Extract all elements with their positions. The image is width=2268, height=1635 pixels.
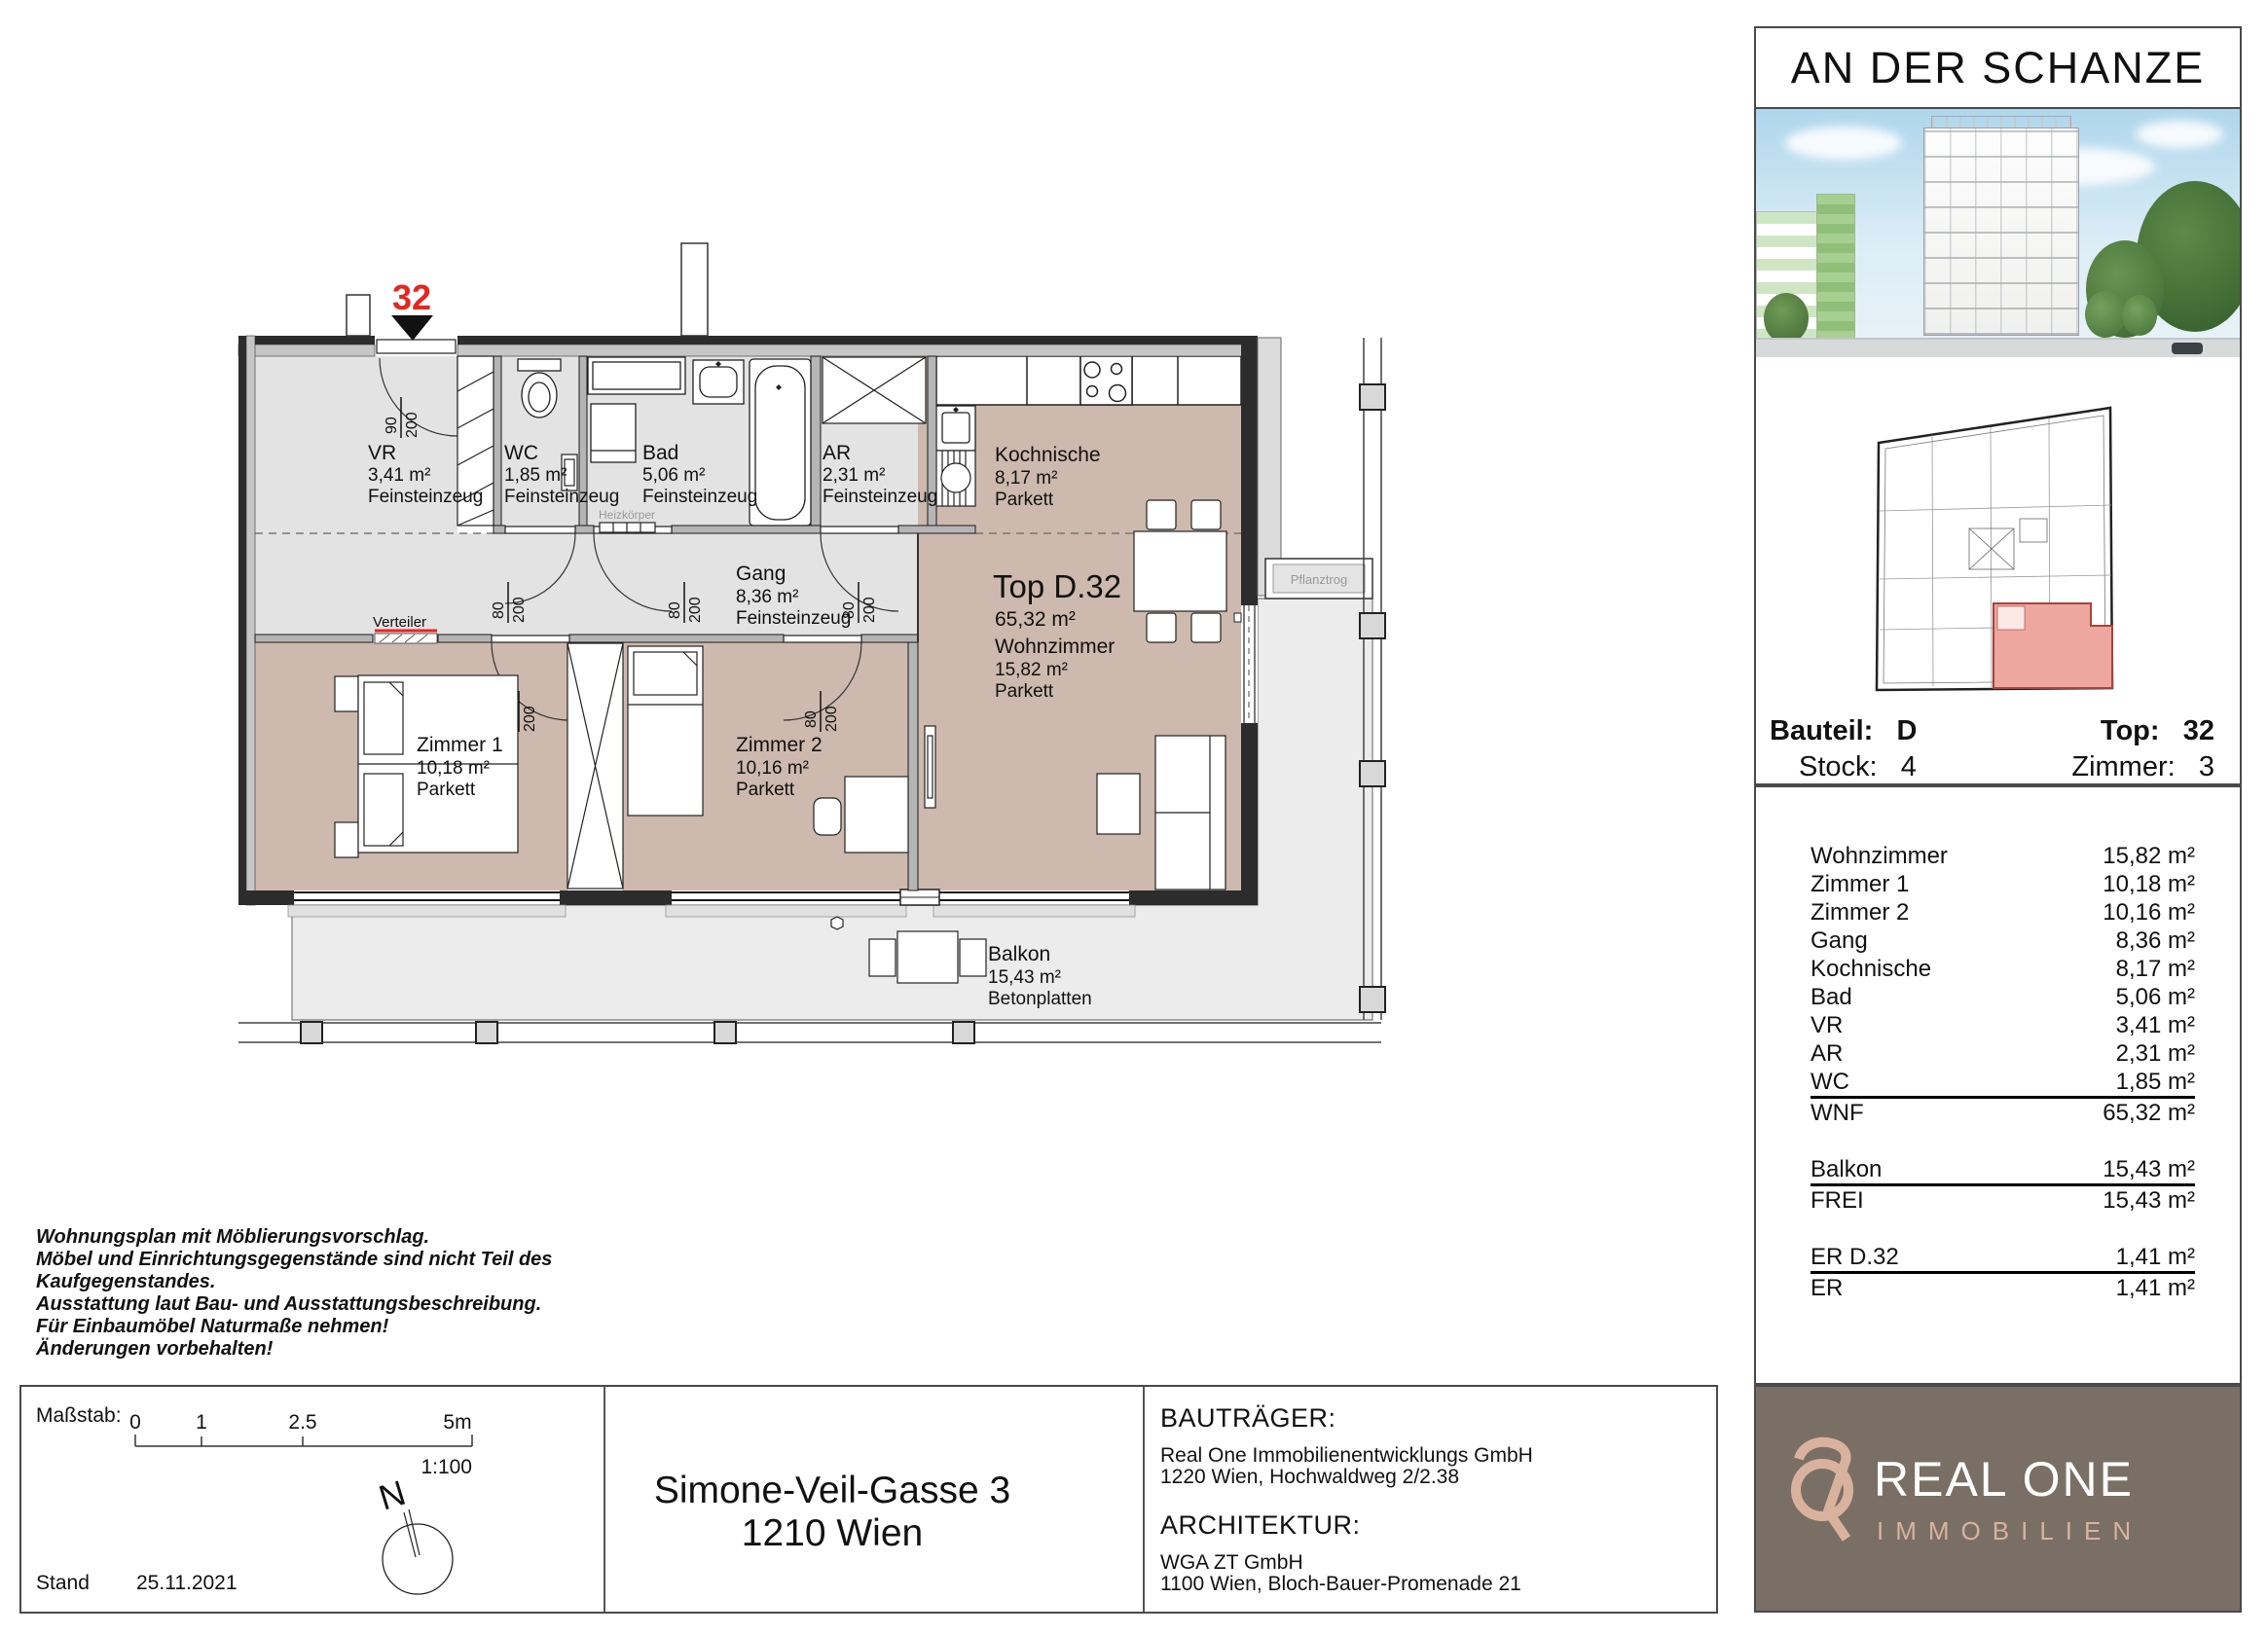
row-value: 10,18 m² — [2103, 870, 2195, 898]
svg-text:200: 200 — [861, 597, 878, 623]
cloud-shape — [1785, 127, 1902, 160]
svg-text:200: 200 — [522, 706, 538, 732]
dishwasher-icon — [936, 451, 975, 506]
bath-cabinet — [588, 357, 685, 394]
stock-value: 4 — [1901, 751, 1917, 782]
table-row: Bad5,06 m² — [1811, 983, 2195, 1011]
row-value: 1,41 m² — [2116, 1274, 2195, 1302]
svg-text:Feinsteinzeug: Feinsteinzeug — [642, 487, 757, 507]
row-label: Balkon — [1811, 1155, 1882, 1183]
row-value: 15,82 m² — [2103, 842, 2195, 870]
row-label: Zimmer 2 — [1811, 898, 1909, 926]
row-label: VR — [1811, 1011, 1843, 1039]
heizkoerper-label: Heizkörper — [599, 508, 655, 522]
disclaimer-line: Wohnungsplan mit Möblierungsvorschlag. — [36, 1226, 552, 1249]
svg-text:200: 200 — [404, 412, 421, 438]
scale-bar — [131, 1413, 482, 1456]
svg-text:10,16 m²: 10,16 m² — [736, 758, 809, 779]
row-label: AR — [1811, 1039, 1843, 1068]
row-label: Wohnzimmer — [1811, 842, 1948, 870]
svg-text:15,82 m²: 15,82 m² — [995, 660, 1068, 680]
table-row: AR2,31 m² — [1811, 1039, 2195, 1068]
table-row-total-frei: FREI15,43 m² — [1811, 1186, 2195, 1215]
unit-info-row2: Stock: 4 — [1799, 751, 1917, 783]
table-row: VR3,41 m² — [1811, 1011, 2195, 1039]
bed-zimmer2 — [628, 646, 703, 816]
row-value: 65,32 m² — [2103, 1099, 2195, 1127]
developer-heading: BAUTRÄGER: — [1160, 1403, 1336, 1434]
zimmer-label: Zimmer: — [2071, 751, 2175, 782]
table-row: Zimmer 110,18 m² — [1811, 870, 2195, 898]
table-row-total-er: ER1,41 m² — [1811, 1274, 2195, 1302]
svg-text:200: 200 — [511, 597, 528, 623]
row-value: 8,17 m² — [2116, 955, 2195, 983]
svg-text:Parkett: Parkett — [995, 490, 1054, 510]
row-value: 15,43 m² — [2103, 1155, 2195, 1183]
bauteil-value: D — [1897, 715, 1918, 746]
tree — [1764, 293, 1809, 344]
entrance-marker: 32 — [391, 277, 433, 341]
washing-machine-icon — [591, 404, 636, 462]
bauteil-label: Bauteil: — [1770, 715, 1873, 746]
sidebar-project-box: AN DER SCHANZE — [1754, 26, 2242, 785]
cloud-shape — [2136, 121, 2223, 148]
logo-subtitle: IMMOBILIEN — [1877, 1516, 2142, 1546]
row-label: Zimmer 1 — [1811, 870, 1909, 898]
row-label: Kochnische — [1811, 955, 1931, 983]
bathtub-icon — [750, 359, 811, 526]
sidebar-area-table-box: Wohnzimmer15,82 m² Zimmer 110,18 m² Zimm… — [1754, 785, 2242, 1385]
ar-wardrobe — [823, 357, 926, 423]
svg-text:1,85 m²: 1,85 m² — [504, 465, 567, 486]
svg-text:Gang: Gang — [736, 563, 786, 585]
row-label: FREI — [1811, 1186, 1864, 1215]
svg-text:80: 80 — [491, 601, 507, 619]
zimmer-value: 3 — [2199, 751, 2214, 782]
svg-text:15,43 m²: 15,43 m² — [988, 967, 1061, 988]
disclaimer-line: Ausstattung laut Bau- und Ausstattungsbe… — [36, 1293, 552, 1316]
svg-text:200: 200 — [687, 597, 704, 623]
svg-text:200: 200 — [823, 706, 840, 732]
disclaimer: Wohnungsplan mit Möblierungsvorschlag. M… — [36, 1226, 552, 1361]
svg-text:3,41 m²: 3,41 m² — [368, 465, 430, 486]
table-spacer — [1811, 1127, 2195, 1155]
svg-text:Feinsteinzeug: Feinsteinzeug — [504, 487, 619, 507]
row-label: WC — [1811, 1068, 1849, 1096]
unit-info-row1: Bauteil: D — [1770, 715, 1917, 747]
row-value: 1,41 m² — [2116, 1243, 2195, 1271]
address-line1: Simone-Veil-Gasse 3 — [563, 1470, 1102, 1512]
svg-text:5,06 m²: 5,06 m² — [642, 465, 705, 486]
svg-text:Feinsteinzeug: Feinsteinzeug — [736, 608, 851, 629]
svg-text:Parkett: Parkett — [995, 681, 1054, 702]
row-value: 5,06 m² — [2116, 983, 2195, 1011]
table-row-total-wnf: WNF65,32 m² — [1811, 1099, 2195, 1127]
unit-info-row1-right: Top: 32 — [2101, 715, 2214, 747]
tv-board — [925, 726, 935, 808]
svg-text:Wohnzimmer: Wohnzimmer — [995, 636, 1115, 658]
white-tower — [1923, 127, 2079, 336]
architect-address: 1100 Wien, Bloch-Bauer-Promenade 21 — [1160, 1573, 1521, 1596]
svg-text:Parkett: Parkett — [736, 780, 795, 800]
green-building-wing — [1816, 194, 1855, 342]
scale-label: Maßstab: — [36, 1404, 122, 1428]
footer-divider — [1143, 1387, 1145, 1612]
floor-plan: 90 200 80 200 80 200 80 200 80 200 80 20… — [195, 175, 1752, 1265]
svg-text:80: 80 — [667, 601, 683, 619]
table-spacer — [1811, 1215, 2195, 1243]
area-table: Wohnzimmer15,82 m² Zimmer 110,18 m² Zimm… — [1811, 842, 2195, 1302]
stand-label: Stand — [36, 1572, 90, 1595]
svg-text:80: 80 — [803, 710, 820, 728]
disclaimer-line: Möbel und Einrichtungsgegenstände sind n… — [36, 1249, 552, 1271]
car — [2172, 343, 2203, 354]
row-value: 15,43 m² — [2103, 1186, 2195, 1215]
row-value: 8,36 m² — [2116, 926, 2195, 955]
top-value: 32 — [2183, 715, 2214, 746]
developer-name: Real One Immobilienentwicklungs GmbH — [1160, 1444, 1533, 1468]
tree — [2085, 291, 2126, 338]
row-label: ER D.32 — [1811, 1243, 1899, 1271]
project-address: Simone-Veil-Gasse 3 1210 Wien — [563, 1470, 1102, 1555]
developer-address: 1220 Wien, Hochwaldweg 2/2.38 — [1160, 1466, 1459, 1489]
svg-text:Kochnische: Kochnische — [995, 444, 1101, 466]
svg-text:Feinsteinzeug: Feinsteinzeug — [368, 487, 483, 507]
svg-text:Parkett: Parkett — [417, 780, 476, 800]
svg-text:Betonplatten: Betonplatten — [988, 989, 1092, 1009]
svg-text:2,31 m²: 2,31 m² — [823, 465, 885, 486]
logo-wordmark: REAL ONE — [1874, 1451, 2134, 1508]
architect-heading: ARCHITEKTUR: — [1160, 1510, 1361, 1541]
scale-ratio: 1:100 — [389, 1456, 472, 1479]
svg-text:65,32 m²: 65,32 m² — [995, 608, 1076, 631]
svg-text:WC: WC — [504, 442, 538, 464]
table-row: Zimmer 210,16 m² — [1811, 898, 2195, 926]
address-line2: 1210 Wien — [563, 1512, 1102, 1555]
washbasin-icon — [693, 360, 744, 404]
svg-text:Zimmer 2: Zimmer 2 — [736, 734, 823, 756]
svg-text:8,36 m²: 8,36 m² — [736, 587, 798, 607]
table-row: Wohnzimmer15,82 m² — [1811, 842, 2195, 870]
svg-text:N: N — [374, 1477, 410, 1518]
svg-text:Balkon: Balkon — [988, 943, 1050, 965]
svg-text:AR: AR — [823, 442, 851, 464]
row-label: ER — [1811, 1274, 1843, 1302]
row-value: 10,16 m² — [2103, 898, 2195, 926]
company-logo-box: REAL ONE IMMOBILIEN — [1754, 1385, 2242, 1613]
row-label: Bad — [1811, 983, 1852, 1011]
building-photo — [1756, 109, 2240, 357]
entrance-arrow-icon — [391, 315, 433, 341]
svg-text:Pflanztrog: Pflanztrog — [1291, 572, 1348, 587]
svg-text:Verteiler: Verteiler — [373, 614, 426, 631]
kitchen-sink-icon — [936, 406, 975, 451]
stock-label: Stock: — [1799, 751, 1878, 782]
row-label: Gang — [1811, 926, 1868, 955]
radiator-icon — [600, 523, 655, 532]
architect-name: WGA ZT GmbH — [1160, 1551, 1303, 1575]
table-row: Gang8,36 m² — [1811, 926, 2195, 955]
unit-info-row2-right: Zimmer: 3 — [2071, 751, 2214, 783]
table-row: Kochnische8,17 m² — [1811, 955, 2195, 983]
table-row: WC1,85 m² — [1811, 1068, 2195, 1099]
north-arrow-icon: N — [372, 1477, 464, 1599]
disclaimer-line: Kaufgegenstandes. — [36, 1271, 552, 1293]
table-row: ER D.321,41 m² — [1811, 1243, 2195, 1274]
row-value: 2,31 m² — [2116, 1039, 2195, 1068]
windows — [288, 890, 1135, 917]
disclaimer-line: Für Einbaumöbel Naturmaße nehmen! — [36, 1316, 552, 1338]
row-label: WNF — [1811, 1099, 1864, 1127]
svg-text:Bad: Bad — [642, 442, 678, 464]
realone-monogram-icon — [1789, 1434, 1867, 1555]
svg-text:32: 32 — [392, 277, 431, 317]
hob-icon — [1080, 356, 1132, 405]
disclaimer-line: Änderungen vorbehalten! — [36, 1338, 552, 1361]
sofa — [1155, 736, 1225, 890]
svg-text:8,17 m²: 8,17 m² — [995, 468, 1057, 489]
railing-south — [238, 1022, 1381, 1043]
row-value: 1,85 m² — [2116, 1068, 2195, 1096]
page: 90 200 80 200 80 200 80 200 80 200 80 20… — [0, 0, 2268, 1635]
svg-text:Feinsteinzeug: Feinsteinzeug — [823, 487, 937, 507]
table-row: Balkon15,43 m² — [1811, 1155, 2195, 1186]
project-title: AN DER SCHANZE — [1756, 28, 2240, 109]
wardrobe-zimmer1 — [567, 643, 623, 889]
svg-text:90: 90 — [384, 417, 400, 434]
svg-text:10,18 m²: 10,18 m² — [417, 758, 490, 779]
svg-text:Top D.32: Top D.32 — [993, 568, 1121, 604]
stand-date: 25.11.2021 — [136, 1572, 238, 1595]
coffee-table — [1097, 774, 1140, 834]
svg-text:VR: VR — [368, 442, 396, 464]
pflanztrog: Pflanztrog — [1265, 559, 1372, 599]
row-value: 3,41 m² — [2116, 1011, 2195, 1039]
top-label: Top: — [2101, 715, 2160, 746]
tree — [2122, 295, 2157, 336]
svg-text:Zimmer 1: Zimmer 1 — [417, 734, 503, 756]
street — [1756, 338, 2240, 357]
floor-overview-miniplan — [1864, 404, 2127, 696]
